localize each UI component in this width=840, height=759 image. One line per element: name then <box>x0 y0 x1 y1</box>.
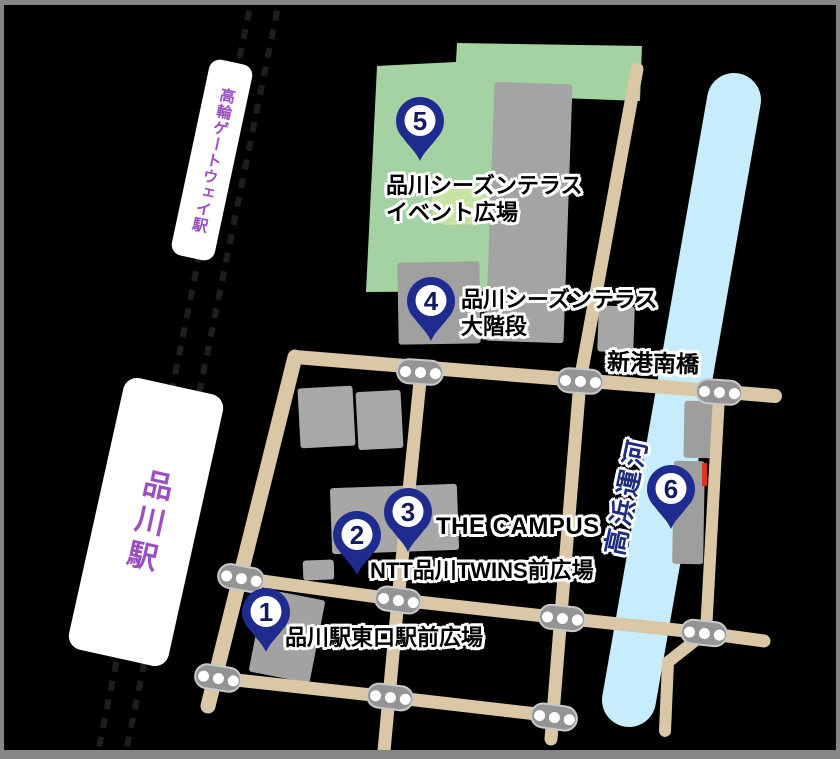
pin-marker-5[interactable]: 5 <box>394 96 446 164</box>
crosswalk <box>395 357 445 386</box>
pin-marker-4[interactable]: 4 <box>405 276 457 344</box>
label-grand-stairs-line1: 品川シーズンテラス <box>461 286 657 313</box>
label-event-plaza-line1: 品川シーズンテラス <box>386 172 582 199</box>
label-grand-stairs: 品川シーズンテラス 大階段 <box>461 286 657 340</box>
label-bridge: 新港南橋 <box>607 348 700 378</box>
pin-number: 3 <box>401 497 415 527</box>
label-grand-stairs-line2: 大階段 <box>461 313 657 340</box>
pin-number: 4 <box>424 286 439 316</box>
pin-number: 2 <box>350 520 364 550</box>
crosswalk <box>555 366 605 395</box>
road-canal-east <box>665 396 719 731</box>
label-ntt-twins: NTT品川TWINS前広場 <box>370 557 594 584</box>
label-event-plaza: 品川シーズンテラス イベント広場 <box>386 172 582 226</box>
pin-marker-3[interactable]: 3 <box>382 487 434 555</box>
label-the-campus: THE CAMPUS <box>436 513 600 540</box>
label-east-exit-plaza: 品川駅東口駅前広場 <box>285 624 483 651</box>
pin-number: 5 <box>413 106 427 136</box>
pin-number: 6 <box>664 474 678 504</box>
pin-marker-6[interactable]: 6 <box>645 464 697 532</box>
pin-marker-1[interactable]: 1 <box>240 587 292 655</box>
pin-marker-2[interactable]: 2 <box>331 510 383 578</box>
road-canal-west <box>551 69 637 739</box>
pin-number: 1 <box>259 597 273 627</box>
station-shinagawa-label: 品川駅 <box>113 465 179 580</box>
label-event-plaza-line2: イベント広場 <box>386 199 582 226</box>
access-map: 高輪ゲートウェイ駅 品川駅 品川シーズンテラス イベント広場 品川シーズンテラス… <box>0 0 840 759</box>
crosswalk <box>694 377 744 406</box>
